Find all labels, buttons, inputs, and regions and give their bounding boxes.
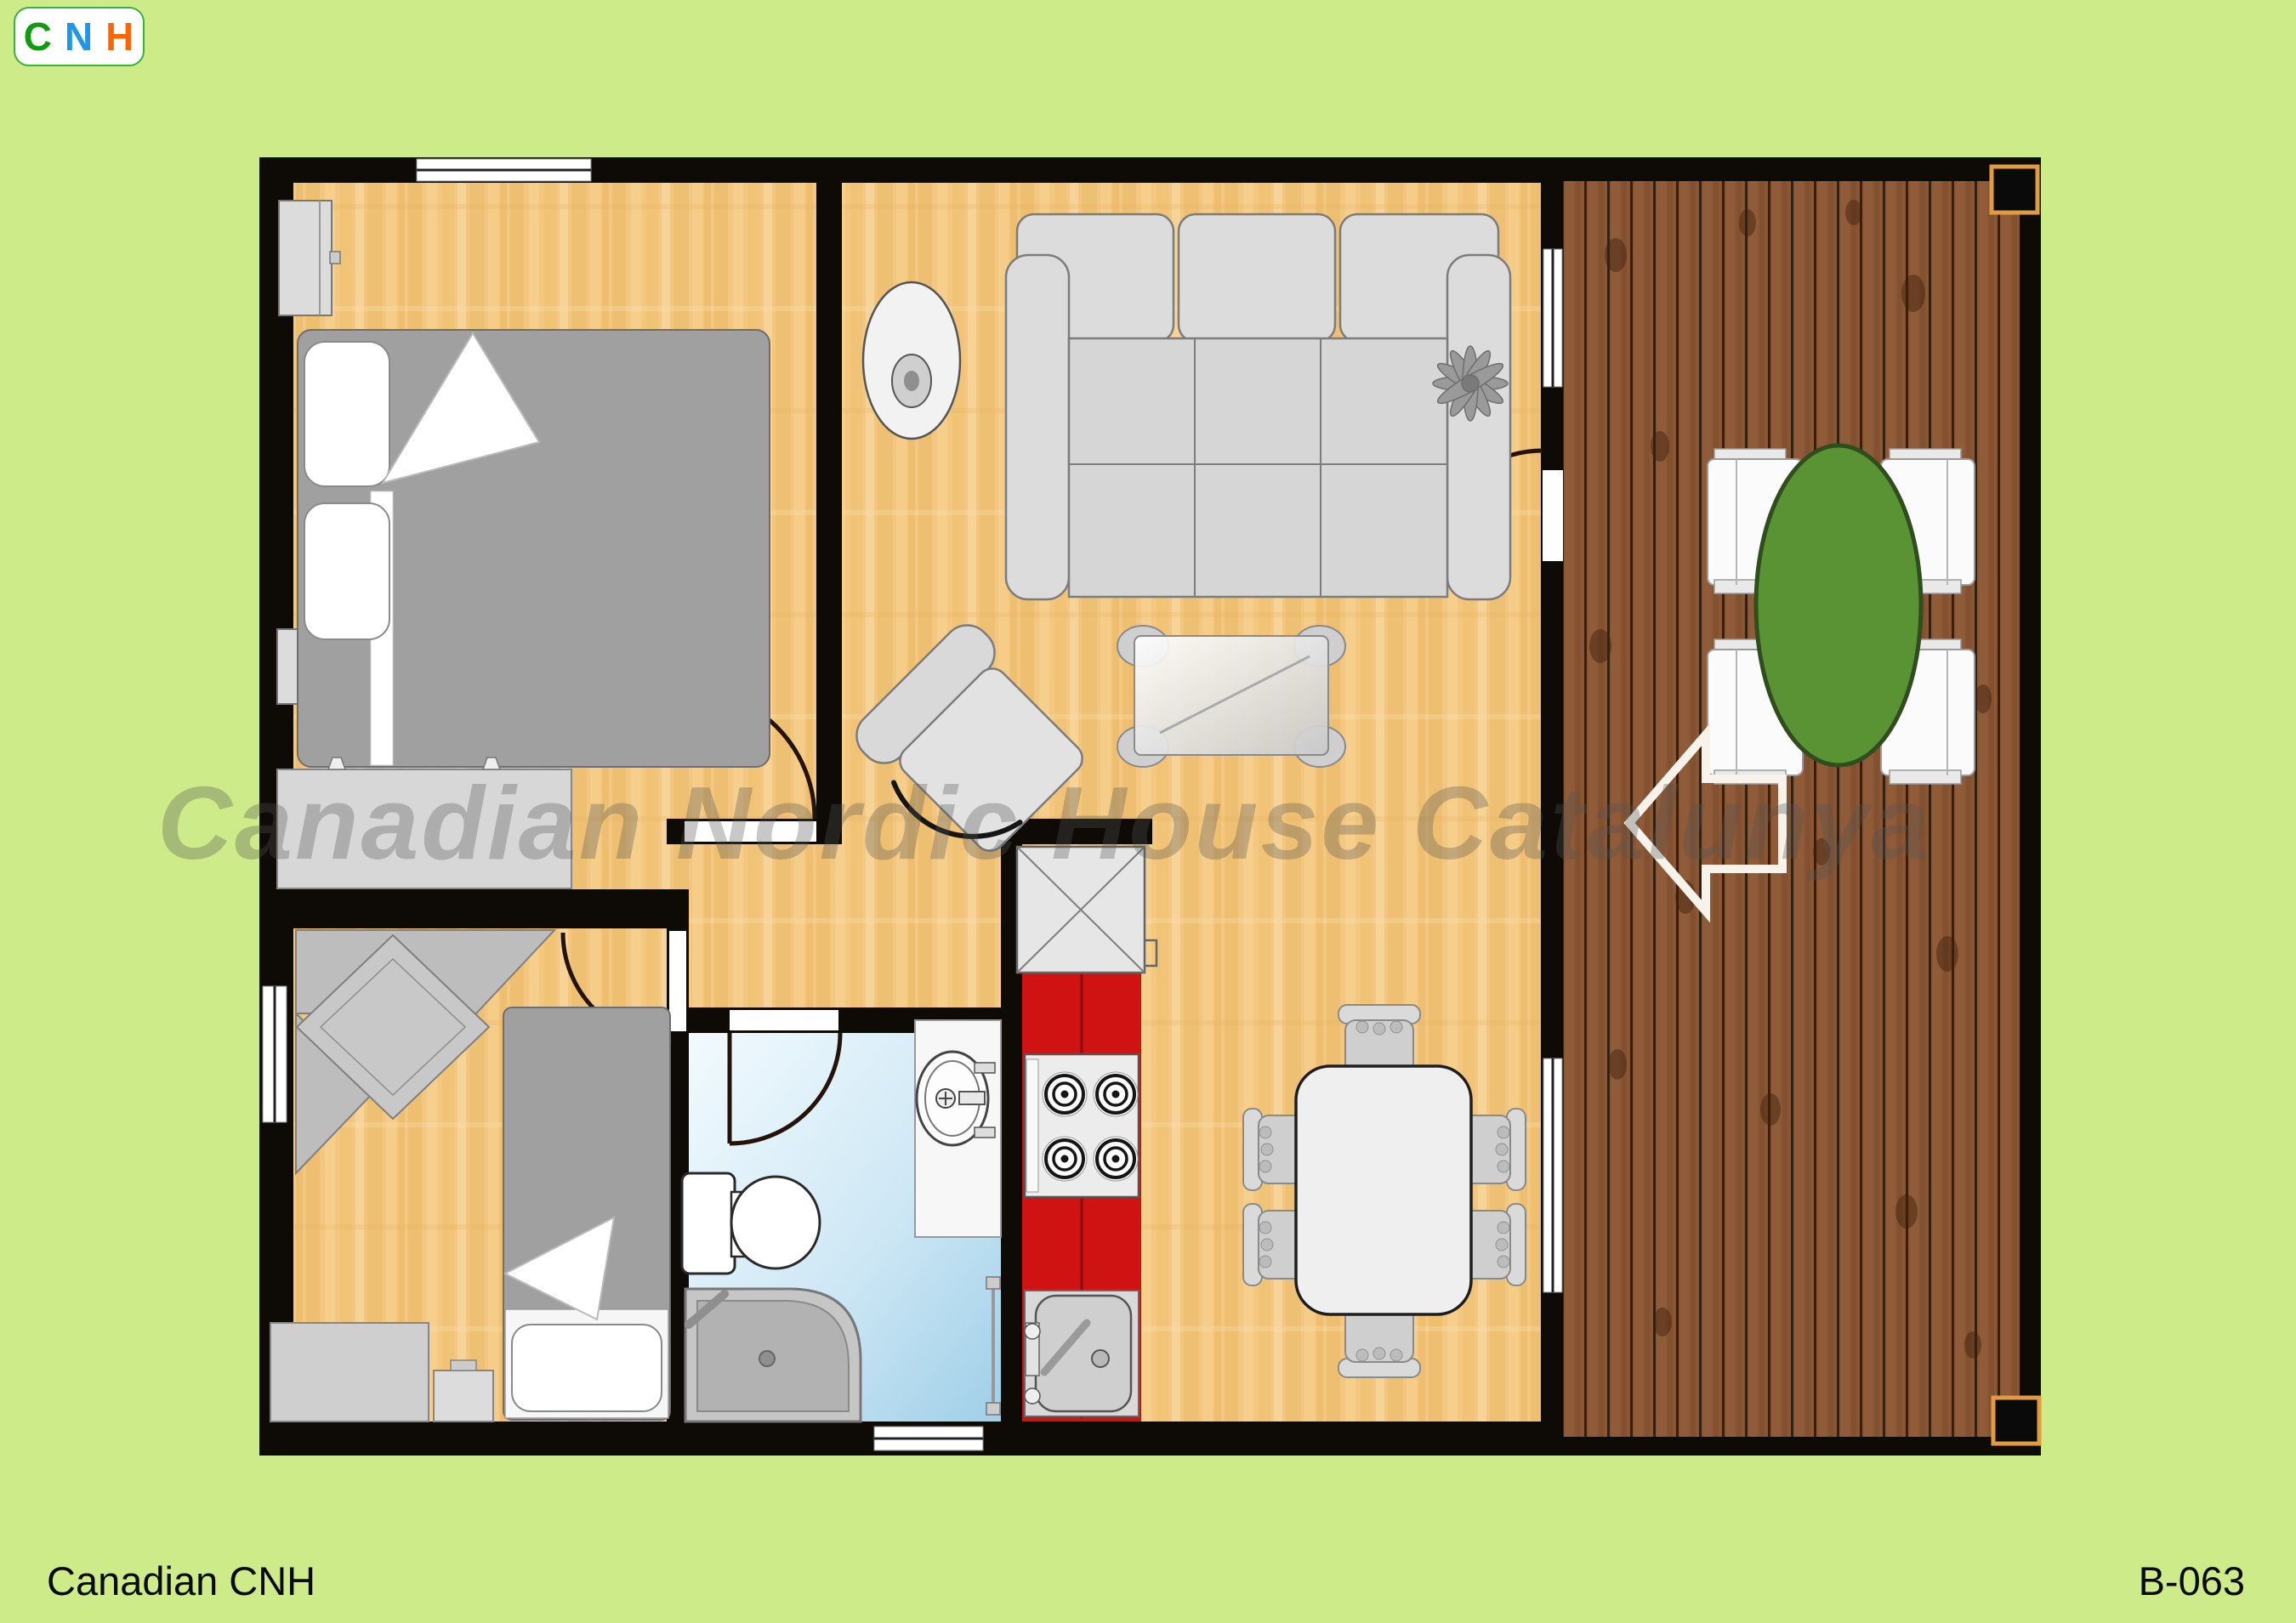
pillow xyxy=(304,342,389,486)
window-bedroom1-top xyxy=(417,159,591,181)
shower-drain xyxy=(759,1351,775,1366)
shower xyxy=(685,1289,861,1422)
window-bedroom2-left xyxy=(263,986,287,1122)
logo-letter-h: H xyxy=(105,14,134,60)
outdoor-table xyxy=(1756,445,1921,765)
refrigerator xyxy=(1017,847,1157,973)
deck-floor xyxy=(1563,181,2020,1437)
deck-post-bottom xyxy=(1993,1398,2039,1444)
sofa xyxy=(1006,214,1510,599)
deck-post-top xyxy=(1992,167,2037,213)
bathroom-vanity xyxy=(915,1020,1001,1237)
kitchen xyxy=(1017,847,1157,1418)
opening-deck-door xyxy=(1543,470,1563,561)
window-living-right xyxy=(1543,249,1562,387)
opening-bedroom2 xyxy=(669,931,686,1031)
cnh-logo: C N H xyxy=(14,7,145,66)
deck xyxy=(1563,167,2039,1444)
pillow xyxy=(304,503,389,639)
dresser xyxy=(277,758,571,888)
wall-bedroom1-east xyxy=(816,183,842,842)
sink-drain xyxy=(1092,1350,1109,1367)
dresser xyxy=(270,1323,429,1422)
coffee-table xyxy=(1117,626,1345,767)
dining-table xyxy=(1296,1066,1471,1314)
logo-letter-n: N xyxy=(65,14,94,60)
stove xyxy=(1025,1054,1139,1197)
kitchen-sink xyxy=(1025,1291,1139,1416)
floor-plan-page: Canadian Nordic House Catalunya C N H Ca… xyxy=(0,0,2296,1623)
dining-chair xyxy=(1338,1005,1420,1075)
nightstand xyxy=(279,201,340,315)
faucet xyxy=(959,1092,985,1104)
pillow xyxy=(512,1325,662,1411)
logo-letter-c: C xyxy=(24,14,53,60)
round-disc xyxy=(863,282,960,439)
dining-chair xyxy=(1338,1308,1420,1377)
opening-bedroom1 xyxy=(685,821,816,842)
double-bed xyxy=(298,330,770,767)
wall-bedrooms-divider xyxy=(259,889,689,928)
single-bed xyxy=(503,1007,670,1420)
builder-label: Canadian CNH xyxy=(47,1558,315,1604)
plan-code-label: B-063 xyxy=(2139,1558,2245,1604)
floor-plan-drawing xyxy=(0,0,2296,1623)
opening-bathroom xyxy=(730,1010,838,1030)
window-bathroom-bottom xyxy=(874,1427,983,1450)
toilet xyxy=(682,1173,820,1274)
window-dining-right xyxy=(1543,1058,1562,1292)
